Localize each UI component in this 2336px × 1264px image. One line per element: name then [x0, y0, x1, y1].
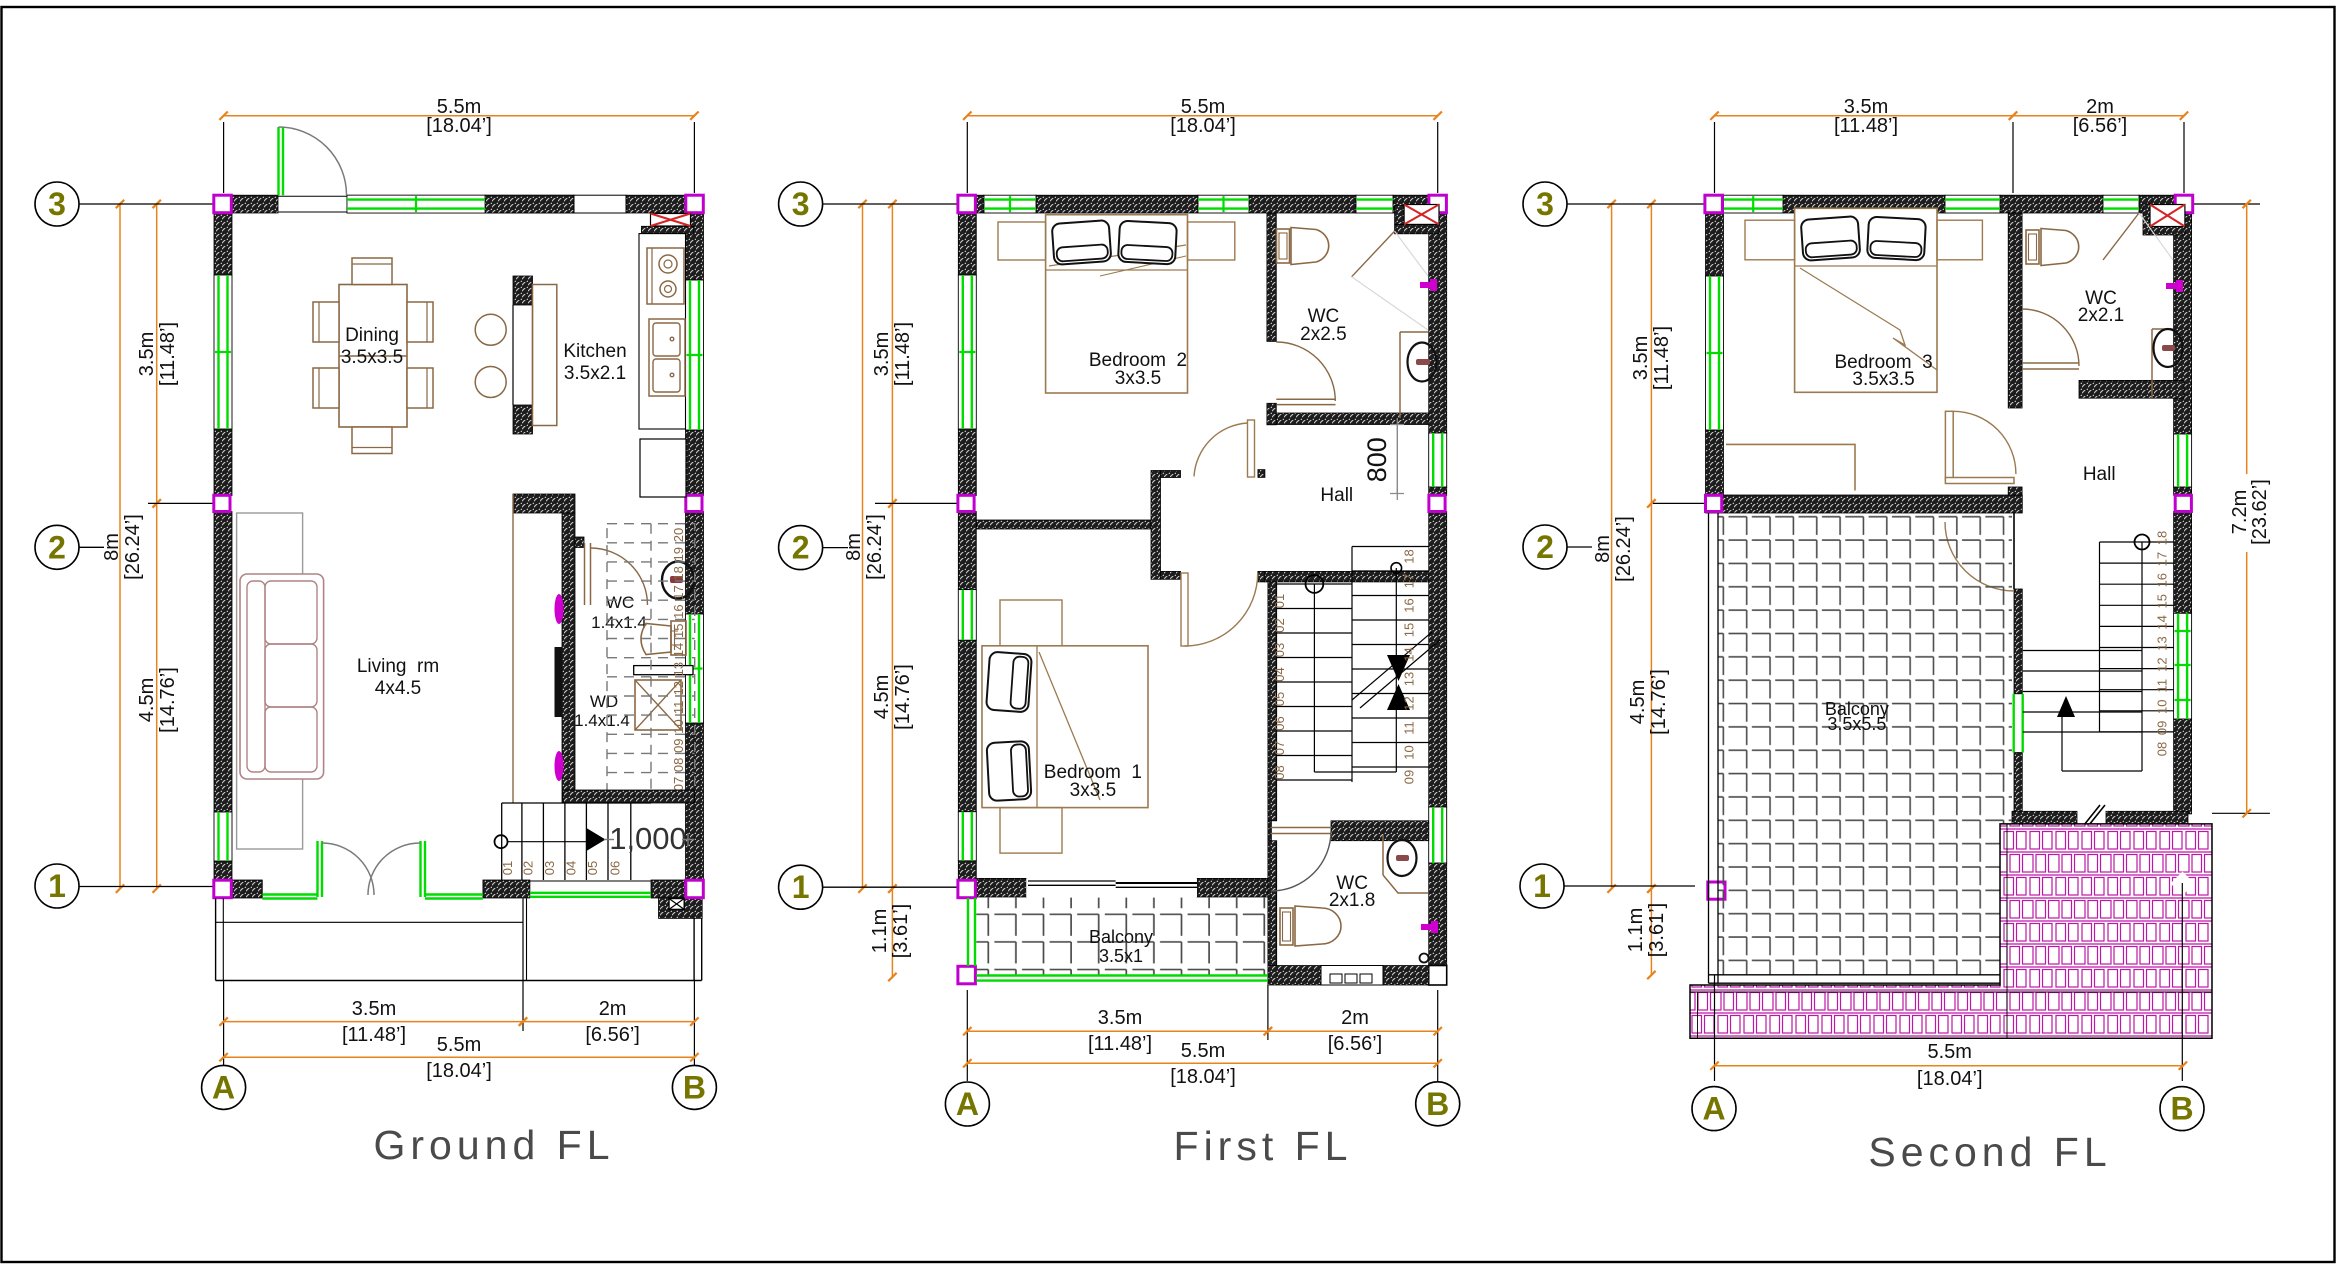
svg-text:01: 01	[1272, 594, 1287, 608]
svg-text:3.5x3.5: 3.5x3.5	[1852, 369, 1914, 390]
svg-text:[11.48’]: [11.48’]	[1651, 326, 1673, 390]
svg-text:10: 10	[671, 719, 686, 733]
svg-text:1: 1	[48, 868, 66, 904]
svg-text:A: A	[956, 1086, 979, 1122]
svg-text:2m: 2m	[1341, 1007, 1369, 1029]
svg-text:1,000: 1,000	[609, 821, 687, 856]
svg-text:3x3.5: 3x3.5	[1115, 368, 1161, 389]
svg-text:05: 05	[1272, 692, 1287, 706]
svg-text:08: 08	[671, 758, 686, 772]
svg-text:13: 13	[2155, 636, 2170, 650]
svg-text:3.5x3.5: 3.5x3.5	[341, 347, 403, 368]
svg-text:18: 18	[671, 566, 686, 580]
svg-text:[6.56’]: [6.56’]	[2073, 115, 2127, 137]
svg-text:3.5m: 3.5m	[136, 332, 158, 376]
svg-text:15: 15	[2155, 594, 2170, 608]
svg-text:1.1m: 1.1m	[869, 909, 891, 953]
svg-text:[3.61’]: [3.61’]	[1646, 903, 1668, 957]
svg-text:08: 08	[1272, 765, 1287, 779]
svg-text:3x3.5: 3x3.5	[1070, 780, 1116, 801]
svg-text:4x4.5: 4x4.5	[375, 678, 421, 699]
svg-text:Hall: Hall	[1320, 485, 1353, 506]
svg-text:A: A	[212, 1069, 235, 1105]
svg-text:[14.76’]: [14.76’]	[1648, 669, 1670, 735]
svg-text:1.4x1.4: 1.4x1.4	[574, 711, 630, 730]
svg-text:18: 18	[2155, 531, 2170, 545]
svg-text:[18.04’]: [18.04’]	[1170, 1066, 1236, 1088]
svg-text:[11.48’]: [11.48’]	[1834, 115, 1898, 137]
svg-text:[26.24’]: [26.24’]	[1613, 516, 1635, 582]
svg-text:B: B	[683, 1069, 706, 1105]
svg-text:3.5x5.5: 3.5x5.5	[1827, 714, 1886, 734]
svg-text:3: 3	[48, 186, 66, 222]
svg-text:04: 04	[564, 861, 579, 875]
svg-text:B: B	[1426, 1086, 1449, 1122]
svg-text:06: 06	[1272, 716, 1287, 730]
svg-text:800: 800	[1362, 437, 1392, 482]
svg-text:Ground FL: Ground FL	[374, 1122, 615, 1168]
svg-text:5.5m: 5.5m	[1927, 1041, 1971, 1063]
svg-text:15: 15	[1402, 623, 1417, 637]
svg-text:3.5m: 3.5m	[1098, 1007, 1142, 1029]
svg-text:[3.61’]: [3.61’]	[890, 904, 912, 958]
svg-text:4.5m: 4.5m	[871, 675, 893, 719]
svg-text:18: 18	[1402, 549, 1417, 563]
svg-text:[6.56’]: [6.56’]	[585, 1024, 639, 1046]
svg-text:3.5m: 3.5m	[871, 332, 893, 376]
svg-text:1: 1	[1533, 868, 1551, 904]
svg-text:2x2.5: 2x2.5	[1300, 324, 1346, 345]
svg-text:WD: WD	[590, 692, 618, 711]
svg-text:2: 2	[1536, 529, 1554, 565]
svg-text:14: 14	[1402, 647, 1417, 661]
svg-text:Dining: Dining	[345, 325, 399, 346]
svg-text:[26.24’]: [26.24’]	[864, 514, 886, 580]
svg-text:[11.48’]: [11.48’]	[1088, 1033, 1152, 1055]
svg-text:[18.04’]: [18.04’]	[1170, 115, 1236, 137]
svg-text:01: 01	[500, 861, 515, 875]
svg-text:Living rm: Living rm	[357, 656, 439, 677]
svg-text:Kitchen: Kitchen	[563, 341, 626, 362]
svg-text:1: 1	[792, 869, 810, 905]
svg-text:17: 17	[1402, 574, 1417, 588]
svg-text:[14.76’]: [14.76’]	[892, 664, 914, 730]
svg-text:3.5m: 3.5m	[352, 998, 396, 1020]
svg-text:11: 11	[2155, 679, 2170, 693]
svg-text:16: 16	[1402, 598, 1417, 612]
svg-text:[18.04’]: [18.04’]	[426, 115, 492, 137]
svg-text:16: 16	[2155, 573, 2170, 587]
svg-text:14: 14	[671, 643, 686, 657]
svg-text:12: 12	[671, 681, 686, 695]
svg-text:13: 13	[671, 662, 686, 676]
svg-text:3.5m: 3.5m	[1630, 336, 1652, 380]
svg-text:09: 09	[1402, 770, 1417, 784]
svg-text:02: 02	[521, 861, 536, 875]
svg-text:[18.04’]: [18.04’]	[426, 1060, 492, 1082]
svg-text:5.5m: 5.5m	[1181, 1040, 1225, 1062]
svg-text:Second FL: Second FL	[1868, 1129, 2111, 1175]
svg-text:10: 10	[1402, 745, 1417, 759]
svg-text:19: 19	[671, 547, 686, 561]
svg-text:03: 03	[1272, 643, 1287, 657]
svg-text:2: 2	[48, 529, 66, 565]
svg-text:[11.48’]: [11.48’]	[342, 1024, 406, 1046]
svg-text:8m: 8m	[101, 533, 123, 561]
svg-text:02: 02	[1272, 618, 1287, 632]
svg-text:11: 11	[671, 701, 686, 715]
svg-text:05: 05	[585, 861, 600, 875]
svg-text:16: 16	[671, 604, 686, 618]
svg-text:Hall: Hall	[2083, 464, 2116, 485]
svg-text:Balcony: Balcony	[1089, 927, 1153, 947]
svg-text:08: 08	[2155, 742, 2170, 756]
svg-text:03: 03	[542, 861, 557, 875]
svg-text:[11.48’]: [11.48’]	[157, 322, 179, 386]
svg-text:2m: 2m	[599, 998, 627, 1020]
svg-text:B: B	[2170, 1091, 2193, 1127]
svg-text:2x1.8: 2x1.8	[1329, 890, 1375, 911]
svg-text:1.1m: 1.1m	[1625, 908, 1647, 952]
svg-text:A: A	[1702, 1091, 1725, 1127]
svg-text:20: 20	[671, 528, 686, 542]
svg-text:4.5m: 4.5m	[1627, 680, 1649, 724]
svg-text:12: 12	[2155, 657, 2170, 671]
svg-text:17: 17	[2155, 552, 2170, 566]
svg-text:[14.76’]: [14.76’]	[157, 667, 179, 733]
svg-text:12: 12	[1402, 696, 1417, 710]
svg-text:First FL: First FL	[1174, 1123, 1353, 1169]
svg-text:15: 15	[671, 624, 686, 638]
svg-text:[6.56’]: [6.56’]	[1328, 1033, 1382, 1055]
svg-text:8m: 8m	[1592, 535, 1614, 563]
svg-text:[23.62’]: [23.62’]	[2249, 479, 2271, 545]
svg-text:[18.04’]: [18.04’]	[1917, 1068, 1983, 1090]
svg-text:2x2.1: 2x2.1	[2078, 305, 2124, 326]
svg-text:1.4x1.4: 1.4x1.4	[591, 613, 647, 632]
svg-text:14: 14	[2155, 615, 2170, 629]
svg-text:17: 17	[671, 585, 686, 599]
svg-text:3: 3	[792, 186, 810, 222]
svg-text:09: 09	[671, 738, 686, 752]
svg-text:7.2m: 7.2m	[2229, 490, 2251, 534]
svg-text:4.5m: 4.5m	[136, 678, 158, 722]
svg-text:3.5x1: 3.5x1	[1099, 946, 1143, 966]
svg-text:07: 07	[1272, 741, 1287, 755]
svg-text:[11.48’]: [11.48’]	[892, 322, 914, 386]
svg-text:2: 2	[792, 530, 810, 566]
svg-text:3: 3	[1536, 186, 1554, 222]
svg-text:3.5x2.1: 3.5x2.1	[564, 363, 626, 384]
svg-text:11: 11	[1402, 721, 1417, 735]
svg-text:09: 09	[2155, 721, 2170, 735]
svg-text:07: 07	[671, 777, 686, 791]
svg-text:13: 13	[1402, 672, 1417, 686]
svg-text:[26.24’]: [26.24’]	[122, 514, 144, 580]
svg-text:WC: WC	[606, 593, 634, 612]
svg-text:10: 10	[2155, 700, 2170, 714]
svg-text:5.5m: 5.5m	[437, 1034, 481, 1056]
svg-text:06: 06	[607, 861, 622, 875]
svg-text:04: 04	[1272, 667, 1287, 681]
